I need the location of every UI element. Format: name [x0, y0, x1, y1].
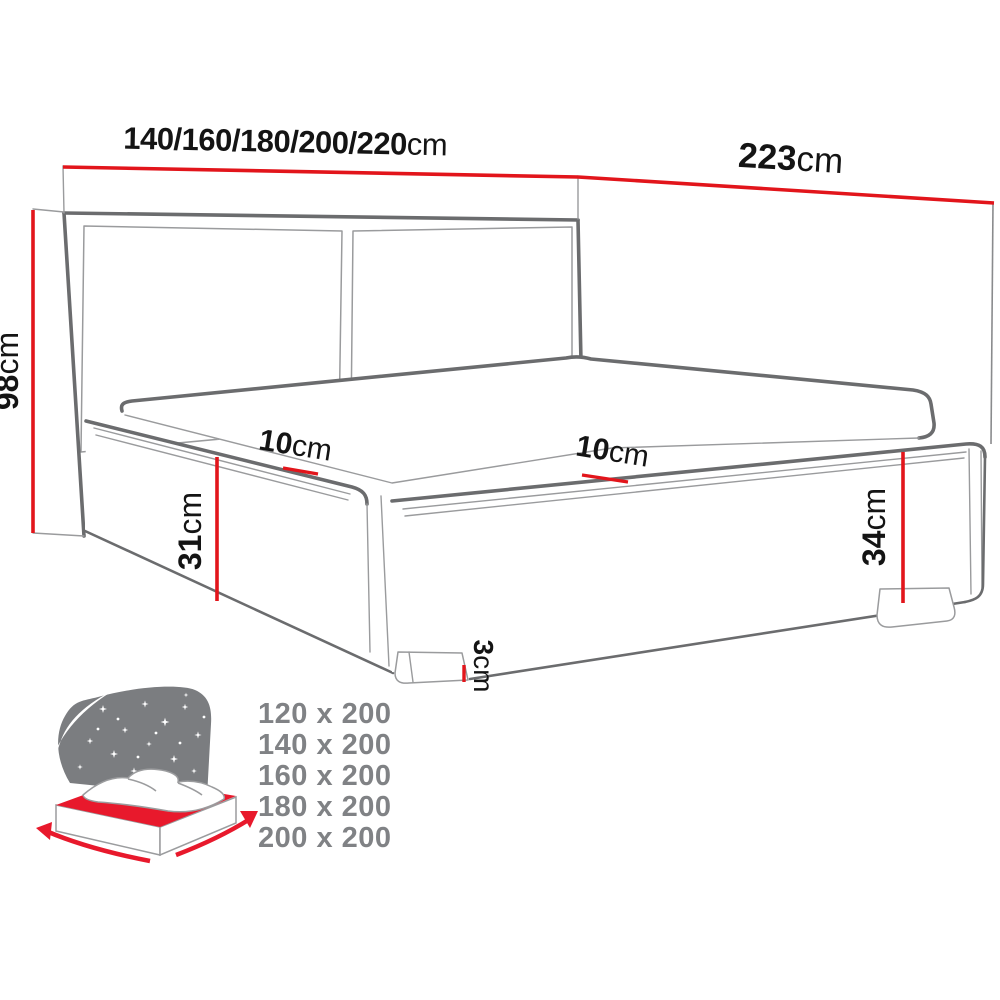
size-option: 160 x 200 — [258, 761, 392, 792]
width-dimension-label: 140/160/180/200/220cm — [123, 121, 448, 163]
dimension-line-width — [63, 167, 578, 177]
size-option: 120 x 200 — [258, 699, 392, 730]
frame-corner-line-inner — [381, 496, 389, 666]
dimension-line-length — [578, 177, 994, 203]
bed-size-icon — [36, 687, 258, 861]
bed-dimension-diagram-page: 140/160/180/200/220cm 223cm 98cm 31cm 34… — [0, 0, 1000, 1000]
side-height-dimension-label: 34cm — [856, 488, 892, 566]
height-dimension-label: 98cm — [0, 332, 25, 410]
size-option: 180 x 200 — [258, 792, 392, 823]
bed-leg-right — [877, 588, 955, 627]
bed-technical-drawing: 140/160/180/200/220cm 223cm 98cm 31cm 34… — [0, 0, 1000, 1000]
extension-tick-height-bottom — [33, 533, 84, 536]
frame-foot-corner-line2 — [981, 451, 982, 588]
bed-leg-left — [395, 652, 468, 683]
front-height-dimension-label: 31cm — [172, 492, 208, 570]
extension-line-foot — [991, 203, 993, 444]
size-option: 140 x 200 — [258, 730, 392, 761]
bed-drawing — [33, 166, 993, 683]
length-dimension-label: 223cm — [737, 136, 844, 181]
available-sizes-list: 120 x 200 140 x 200 160 x 200 180 x 200 … — [258, 699, 392, 854]
extension-line-left-top — [63, 166, 64, 213]
leg-height-dimension-label: 3cm — [468, 640, 499, 693]
size-option: 200 x 200 — [258, 823, 392, 854]
extension-tick-height-top — [33, 209, 64, 212]
